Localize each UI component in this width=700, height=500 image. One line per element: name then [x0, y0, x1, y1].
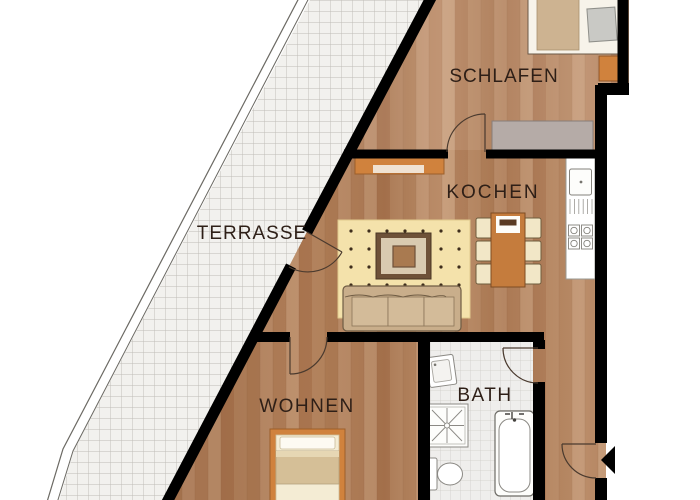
sideboard-inset — [373, 165, 424, 173]
label-kochen: KOCHEN — [446, 182, 539, 203]
bed-pillow — [587, 7, 617, 42]
label-bath: BATH — [457, 385, 512, 406]
floorplan-canvas: TERRASSE SCHLAFEN KOCHEN WOHNEN BATH — [0, 0, 700, 500]
label-terrasse: TERRASSE — [197, 223, 307, 244]
dining-set-icon — [476, 213, 541, 287]
shower-icon — [426, 404, 468, 447]
bed-pillow-wohnen — [280, 437, 335, 449]
nightstand-icon — [599, 56, 619, 81]
bed-blanket — [537, 0, 579, 50]
coffee-table-icon — [376, 233, 431, 279]
sink-drain — [580, 181, 583, 184]
washbasin-icon — [426, 354, 457, 387]
wardrobe-icon — [492, 121, 593, 151]
wohnen-furniture — [270, 429, 345, 500]
sofa-icon — [343, 286, 461, 331]
bathtub-icon — [495, 411, 534, 496]
label-wohnen: WOHNEN — [259, 396, 355, 417]
bed-blanket-stripe — [276, 451, 339, 457]
label-schlafen: SCHLAFEN — [449, 66, 558, 87]
room-bath — [426, 342, 534, 500]
placemat-bar — [500, 220, 517, 226]
